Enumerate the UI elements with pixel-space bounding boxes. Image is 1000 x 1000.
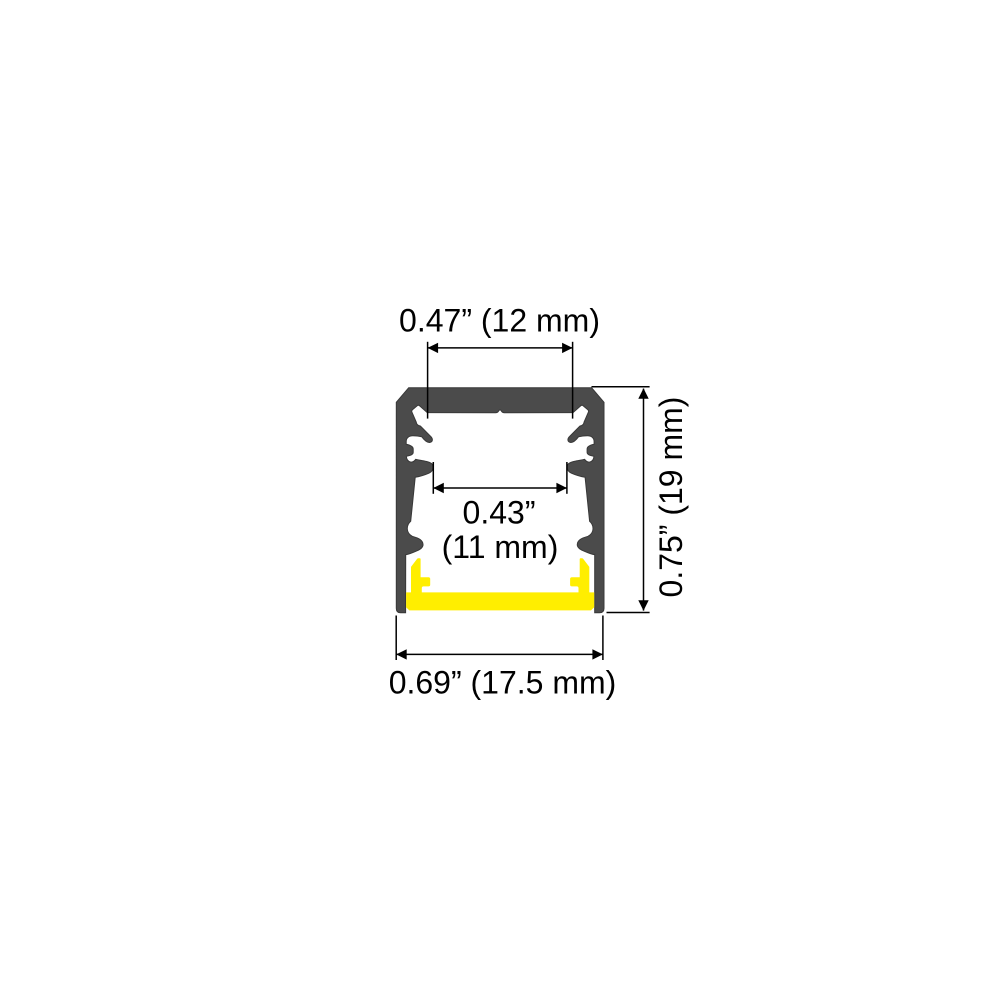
svg-text:0.43”: 0.43” <box>463 495 536 531</box>
svg-text:0.69” (17.5 mm): 0.69” (17.5 mm) <box>389 665 617 701</box>
svg-text:0.75” (19 mm): 0.75” (19 mm) <box>653 397 689 598</box>
svg-text:(11 mm): (11 mm) <box>442 529 559 565</box>
svg-text:0.47” (12 mm): 0.47” (12 mm) <box>399 303 600 339</box>
